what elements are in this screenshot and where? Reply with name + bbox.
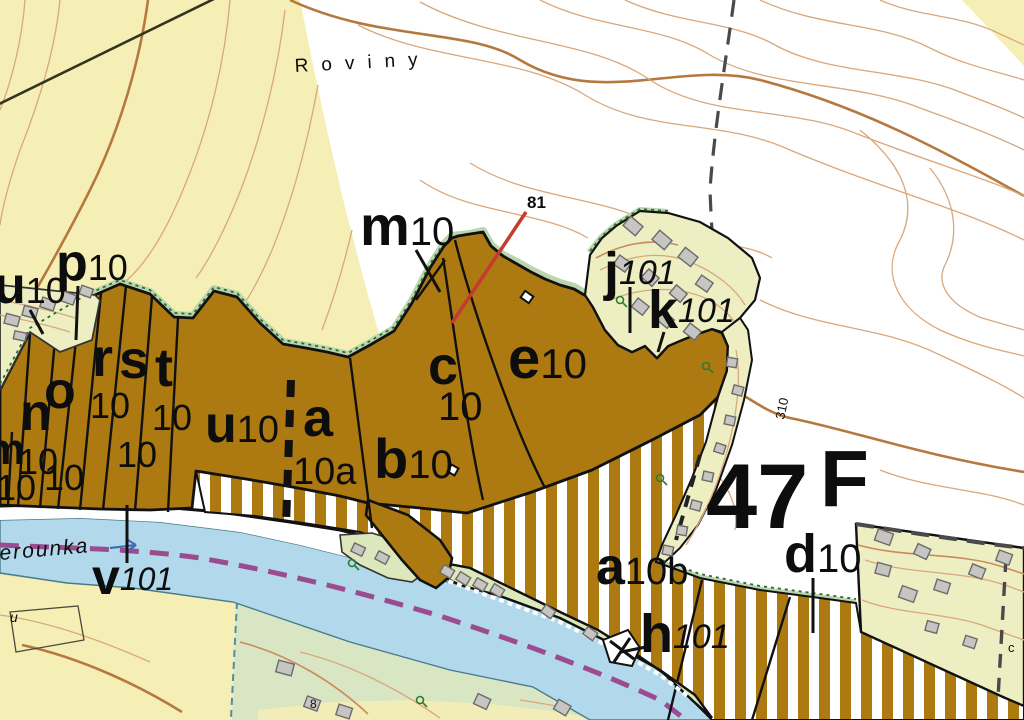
label-r: r [92,328,113,388]
pointer-p10 [76,286,78,340]
field-yellow-topright [962,0,1024,66]
map-viewport: Roviny m10 81 u10 p10 n 10 o 10 m 10 r 1… [0,0,1024,720]
label-a10a-letter: a [303,388,334,448]
label-o-num: 10 [44,457,84,498]
label-m-left-num: 10 [0,467,36,508]
label-s-num: 10 [117,434,157,475]
label-81: 81 [527,193,546,212]
label-F: F [820,434,869,523]
place-label-roviny: Roviny [294,49,431,77]
label-r-num: 10 [90,385,130,426]
label-t: t [155,338,173,398]
label-small-8: 8 [310,697,317,711]
label-m10-top: m10 [360,194,454,257]
label-small-u: u [10,609,18,625]
label-c-num: 10 [438,385,483,429]
label-t-num: 10 [152,397,192,438]
label-d10: d10 [784,524,862,584]
label-a10a-num: 10a [293,451,357,493]
label-o: o [44,362,76,420]
label-small-c: c [1008,640,1015,655]
forestry-map: Roviny m10 81 u10 p10 n 10 o 10 m 10 r 1… [0,0,1024,720]
label-s: s [119,330,149,390]
